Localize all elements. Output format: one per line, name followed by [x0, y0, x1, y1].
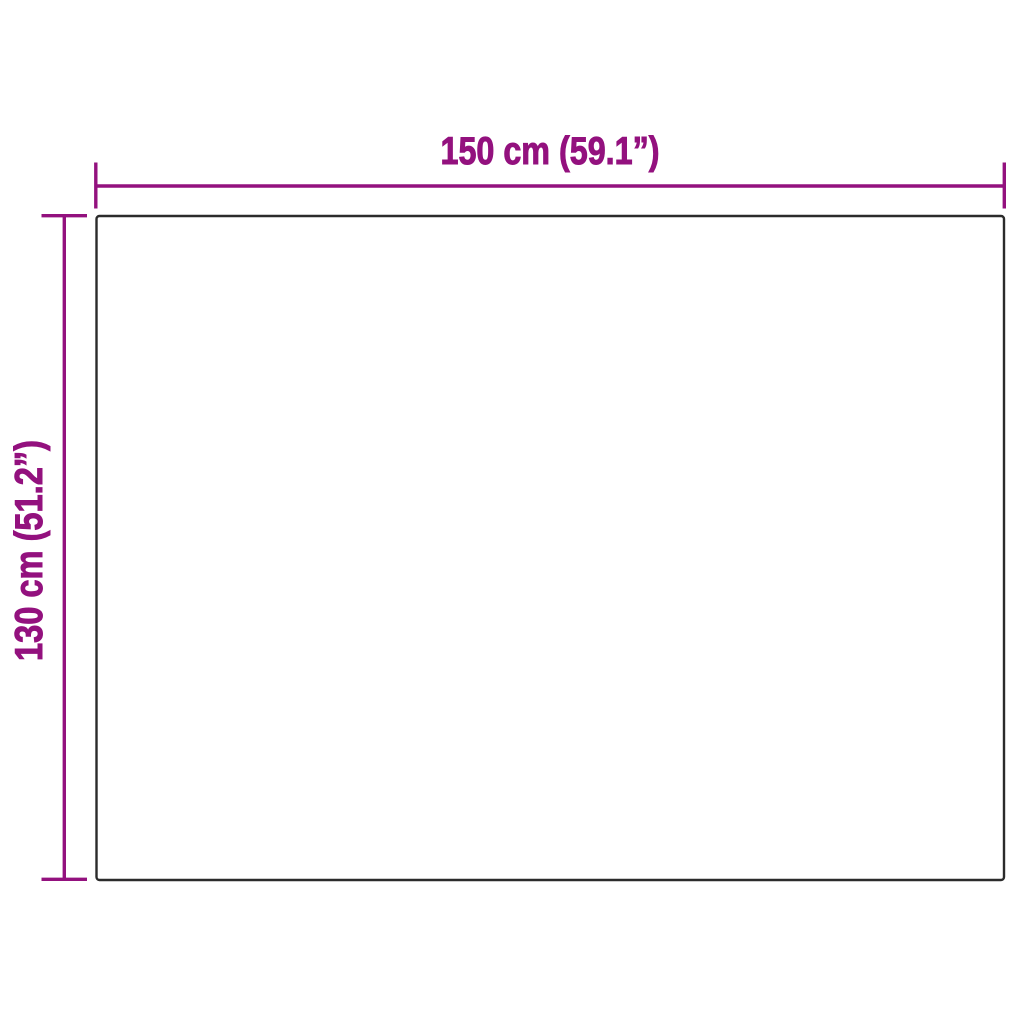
svg-text:150 cm (59.1”): 150 cm (59.1”) [441, 130, 660, 173]
svg-text:130 cm (51.2”): 130 cm (51.2”) [8, 440, 51, 661]
